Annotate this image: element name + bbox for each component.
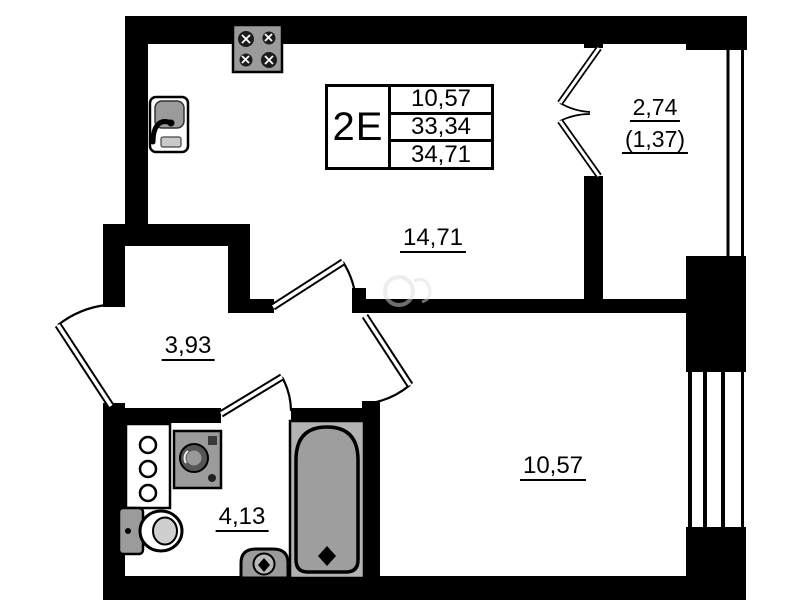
unit-label: 2E bbox=[328, 87, 391, 167]
unit-areas: 10,57 33,34 34,71 bbox=[391, 87, 491, 167]
bedroom-door-leaf bbox=[365, 316, 410, 385]
hallway-area-label: 3,93 bbox=[162, 334, 215, 361]
wall-bottom bbox=[103, 576, 746, 600]
balcony-area-reduced-label: (1,37) bbox=[622, 128, 688, 154]
toilet-symbol bbox=[119, 508, 182, 554]
bathroom-area-label: 4,13 bbox=[216, 505, 269, 532]
wall-balcony-lower bbox=[584, 176, 603, 313]
wall-balcony-stub-top bbox=[584, 16, 603, 48]
wall-right-mid-block bbox=[686, 256, 746, 372]
wall-bathroom-top-left bbox=[125, 408, 221, 423]
unit-area-total: 33,34 bbox=[391, 115, 491, 143]
shelf-unit-symbol bbox=[126, 424, 170, 508]
stove-symbol bbox=[233, 25, 282, 72]
balcony-door-arc-bottom bbox=[560, 114, 590, 121]
wall-left-lower bbox=[103, 403, 125, 600]
balcony-labels: 2,74 (1,37) bbox=[622, 96, 688, 154]
wall-left-upper bbox=[125, 16, 148, 246]
washing-machine-symbol bbox=[174, 431, 221, 488]
entrance-door-leaf bbox=[58, 325, 111, 406]
bathroom-door-leaf bbox=[221, 377, 282, 414]
living-door-leaf bbox=[273, 262, 343, 307]
balcony-door-leaf-bottom bbox=[560, 121, 599, 176]
wall-right-facade-line bbox=[741, 44, 744, 576]
entrance-door-arc bbox=[58, 305, 106, 325]
wall-top bbox=[125, 16, 690, 44]
balcony-door-leaf-top bbox=[560, 48, 599, 103]
washbasin-symbol bbox=[241, 549, 288, 578]
wall-kitchen-hall bbox=[103, 224, 240, 246]
unit-area-living: 10,57 bbox=[391, 87, 491, 115]
bathroom-door-arc bbox=[282, 377, 291, 411]
floor-plan: 2E 10,57 33,34 34,71 14,71 3,93 4,13 10,… bbox=[0, 0, 799, 600]
living-kitchen-area-label: 14,71 bbox=[400, 226, 466, 253]
wall-top-right-block bbox=[686, 16, 747, 50]
kitchen-sink-symbol bbox=[150, 97, 188, 152]
bathtub-symbol bbox=[290, 421, 364, 578]
watermark bbox=[385, 277, 430, 305]
balcony-area-label: 2,74 bbox=[630, 96, 681, 122]
bedroom-door-arc bbox=[372, 385, 410, 403]
bedroom-area-label: 10,57 bbox=[520, 454, 586, 481]
unit-area-total-with-balcony: 34,71 bbox=[391, 142, 491, 167]
wall-hall-stub bbox=[228, 299, 274, 313]
wall-left-entrance-top bbox=[103, 246, 125, 307]
balcony-door-arc-top bbox=[560, 103, 590, 112]
title-block: 2E 10,57 33,34 34,71 bbox=[325, 84, 494, 170]
